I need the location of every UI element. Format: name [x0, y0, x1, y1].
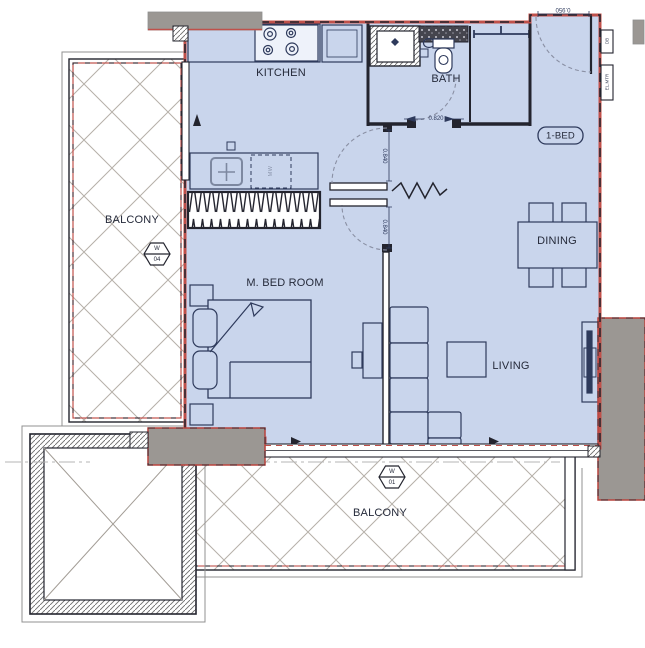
- sofa-chaise: [428, 412, 461, 438]
- column-hatched-shaft: [130, 432, 148, 448]
- bath-door-dim: 0.820: [428, 116, 443, 122]
- window-tag-left-number: 04: [154, 257, 161, 263]
- window-tag-left-type: W: [154, 246, 160, 252]
- pillow: [193, 351, 217, 389]
- balcony-sliding-door-left: [182, 62, 189, 180]
- column-mid: [148, 428, 265, 465]
- sofa-seat: [390, 307, 428, 343]
- db-label: DB: [605, 38, 610, 44]
- column-top-slab: [148, 12, 262, 30]
- meter-label: EL.MTR: [605, 74, 610, 91]
- door-post: [452, 119, 461, 128]
- wardrobe-hangers: [188, 192, 320, 228]
- unit-tag-label: 1-BED: [546, 130, 575, 141]
- column-hatched-top: [173, 26, 188, 41]
- nightstand: [190, 404, 213, 425]
- column-right: [598, 318, 645, 500]
- tv-screen-living: [587, 331, 592, 393]
- bedroom-label: M. BED ROOM: [246, 277, 323, 289]
- microwave-label: MW: [268, 166, 274, 177]
- entrance-dim: 0.950: [555, 6, 570, 12]
- column-hatched-balcony: [588, 446, 600, 457]
- dining-label: DINING: [537, 235, 577, 247]
- window-tag-bottom-number: 01: [389, 480, 396, 486]
- floor-plan-drawing: [0, 0, 645, 648]
- toilet: [433, 39, 454, 73]
- sofa-seat: [390, 378, 428, 412]
- shower-tray: [377, 31, 414, 62]
- balcony-left-label: BALCONY: [105, 214, 159, 226]
- bedroom-door-dim: 0.840: [381, 219, 387, 234]
- bath-label: BATH: [431, 73, 460, 85]
- bedroom-living-partition: [383, 252, 389, 448]
- floor-plan: KITCHEN BATH 1-BED DINING LIVING M. BED …: [0, 0, 645, 648]
- living-label: LIVING: [492, 360, 529, 372]
- kitchen-label: KITCHEN: [256, 67, 306, 79]
- neighbor-wall-stub: [633, 20, 644, 44]
- sofa-seat: [390, 343, 428, 378]
- window-tag-bottom-type: W: [389, 469, 395, 475]
- left-balcony: [62, 52, 188, 426]
- pillow: [193, 309, 217, 347]
- balcony-sliding-door-bottom: [265, 444, 598, 457]
- stove: [255, 25, 318, 61]
- balcony-bottom-label: BALCONY: [353, 507, 407, 519]
- hall-door-dim: 0.840: [381, 148, 387, 163]
- bed: [208, 300, 311, 398]
- sofa-corner: [390, 412, 428, 444]
